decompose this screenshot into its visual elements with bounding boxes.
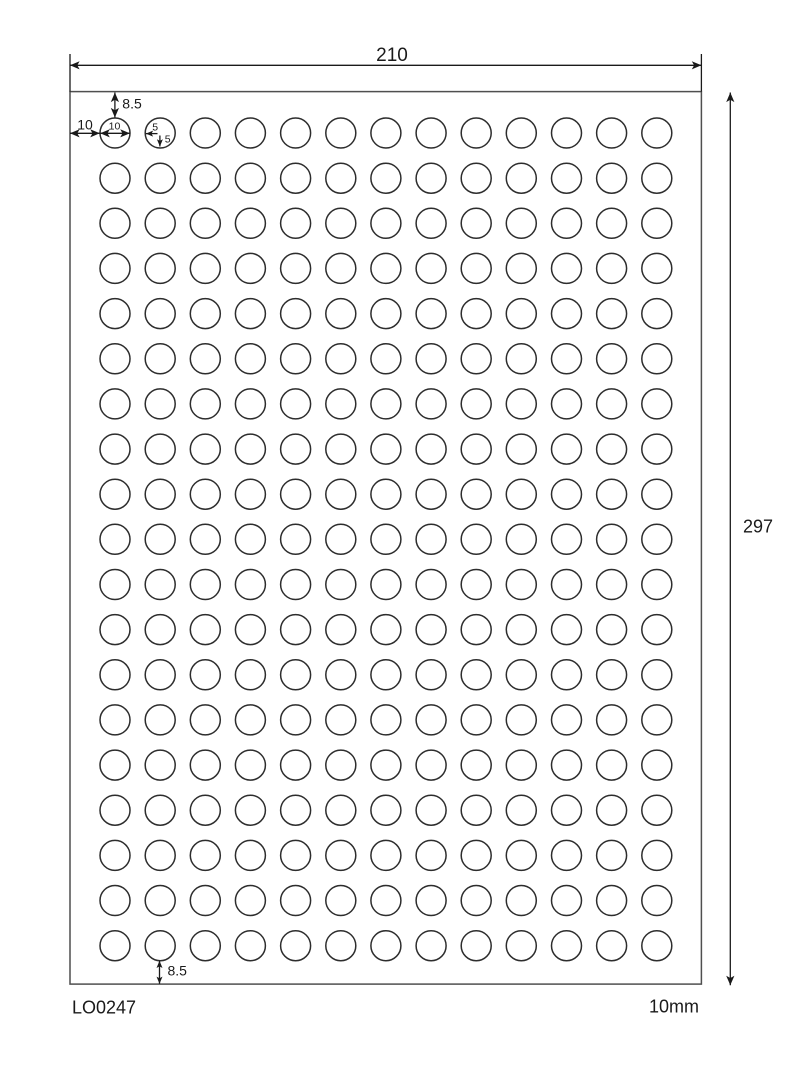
svg-text:5: 5	[152, 122, 158, 134]
svg-text:297: 297	[743, 517, 773, 537]
svg-text:5: 5	[165, 134, 171, 146]
svg-text:210: 210	[376, 45, 408, 66]
svg-text:8.5: 8.5	[122, 95, 142, 111]
svg-text:10: 10	[77, 117, 93, 133]
svg-text:LO0247: LO0247	[72, 998, 136, 1018]
svg-text:10: 10	[109, 121, 121, 133]
svg-text:8.5: 8.5	[168, 963, 188, 979]
svg-text:10mm: 10mm	[649, 997, 699, 1017]
